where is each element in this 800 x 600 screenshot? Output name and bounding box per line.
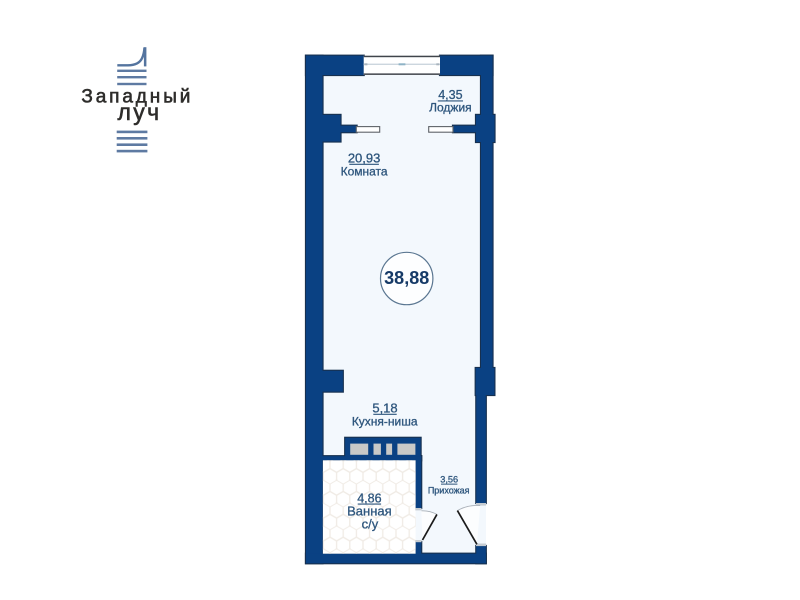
svg-text:3,56: 3,56 xyxy=(440,475,458,485)
svg-text:луч: луч xyxy=(117,99,161,125)
svg-text:Комната: Комната xyxy=(341,164,388,178)
svg-text:38,88: 38,88 xyxy=(384,268,429,288)
svg-text:Прихожая: Прихожая xyxy=(428,486,470,496)
svg-text:20,93: 20,93 xyxy=(348,151,381,166)
svg-text:Лоджия: Лоджия xyxy=(429,101,472,115)
svg-text:с/у: с/у xyxy=(362,517,379,532)
svg-text:5,18: 5,18 xyxy=(372,401,397,416)
svg-text:Кухня-ниша: Кухня-ниша xyxy=(352,415,418,429)
